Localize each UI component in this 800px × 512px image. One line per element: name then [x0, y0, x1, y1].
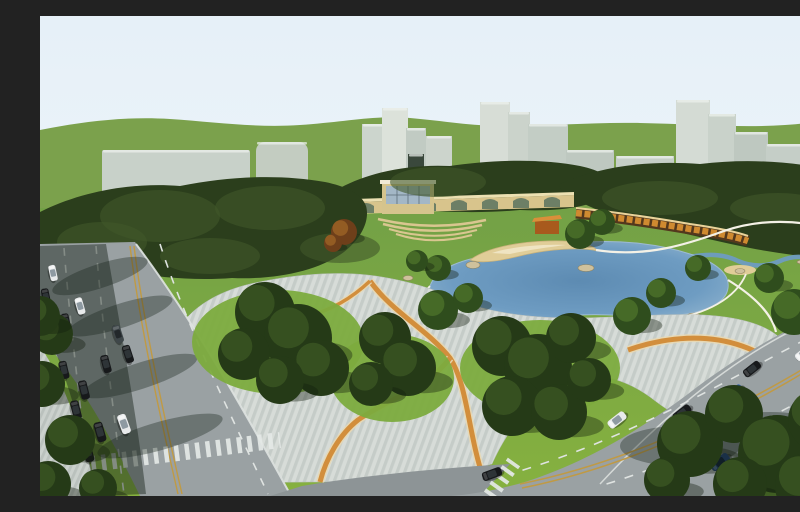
tree-canopy-highlight — [239, 285, 275, 321]
building-roof-edge — [735, 132, 767, 135]
tree-canopy-highlight — [661, 414, 701, 454]
building-roof-edge — [617, 156, 673, 159]
tree-canopy-highlight — [567, 221, 585, 239]
arch-opening — [451, 200, 467, 210]
rock — [735, 269, 745, 274]
forest-highlight — [215, 186, 325, 230]
building-roof-edge — [529, 124, 567, 127]
arch-opening — [544, 197, 560, 207]
tree-canopy-highlight — [259, 358, 288, 387]
tree-canopy-highlight — [648, 280, 666, 298]
tree-canopy-highlight — [455, 285, 473, 303]
building-roof-edge — [409, 154, 423, 157]
building-roof-edge — [567, 150, 613, 153]
tree-canopy-highlight — [570, 360, 596, 386]
park-rendering — [40, 16, 800, 496]
building-roof-edge — [709, 114, 735, 117]
forest-highlight — [160, 238, 260, 274]
tree-canopy-highlight — [534, 387, 568, 421]
building-roof-edge — [677, 100, 709, 103]
tree-canopy-highlight — [81, 471, 104, 494]
building-roof-edge — [481, 102, 509, 105]
tree-canopy-highlight — [333, 220, 349, 236]
tree-canopy-highlight — [508, 337, 549, 378]
scene-canvas — [40, 16, 800, 496]
building-roof-edge — [103, 150, 249, 153]
rock — [466, 262, 480, 269]
tree-canopy-highlight — [756, 265, 774, 283]
tree-canopy-highlight — [325, 235, 336, 246]
tree-canopy-highlight — [716, 460, 748, 492]
building-roof-edge — [257, 142, 307, 145]
tree-canopy-highlight — [407, 251, 420, 264]
building-roof-edge — [427, 136, 451, 139]
building-roof-edge — [767, 144, 800, 147]
tree-canopy-highlight — [268, 307, 309, 348]
lakeside-pavilion — [535, 221, 559, 234]
tree-canopy-highlight — [362, 315, 393, 346]
arch-opening — [482, 199, 498, 209]
tree-canopy-highlight — [743, 419, 790, 466]
rock — [578, 265, 594, 272]
forest-highlight — [602, 181, 718, 215]
tree-canopy-highlight — [708, 388, 743, 423]
building-roof-edge — [363, 124, 383, 127]
tree-canopy-highlight — [615, 299, 638, 322]
tree-canopy-highlight — [486, 379, 522, 415]
tree-canopy-highlight — [591, 210, 607, 226]
arch-opening — [513, 198, 529, 208]
tree-canopy-highlight — [48, 418, 78, 448]
tree-canopy-highlight — [687, 256, 703, 272]
building-roof-edge — [407, 128, 425, 131]
tree-canopy-highlight — [549, 316, 579, 346]
tree-canopy-highlight — [420, 292, 444, 316]
building-roof-edge — [383, 108, 407, 111]
tree-canopy-highlight — [221, 331, 252, 362]
rock — [403, 276, 413, 281]
tree-canopy-highlight — [647, 459, 675, 487]
building-roof-edge — [509, 112, 529, 115]
forest-highlight — [390, 167, 486, 197]
tree-canopy-highlight — [352, 364, 378, 390]
tree-canopy-highlight — [476, 319, 512, 355]
